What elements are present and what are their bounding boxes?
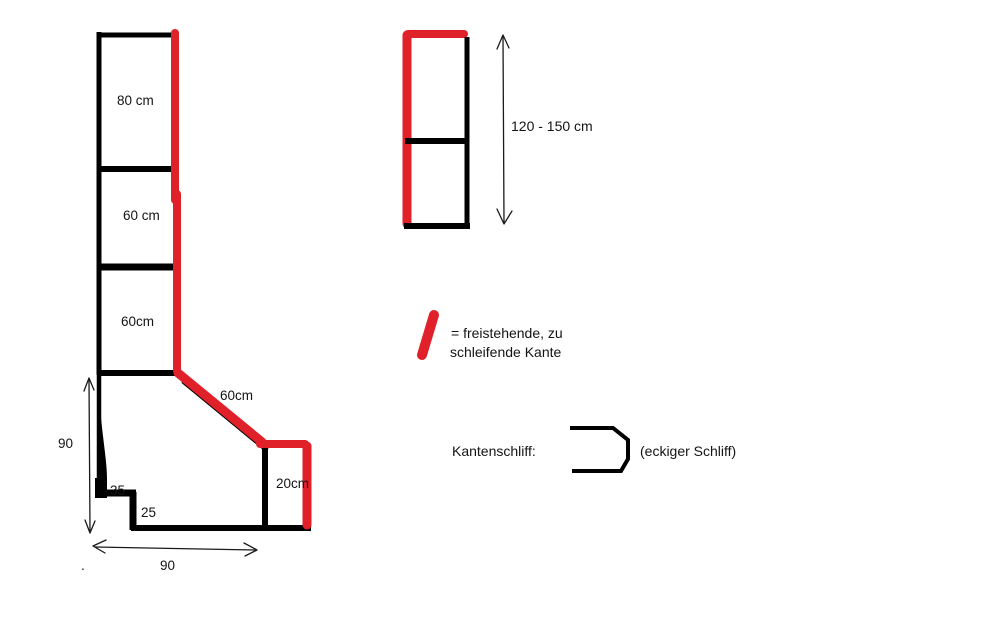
- legend-line2: schleifende Kante: [450, 344, 562, 360]
- edge-grind-note: Kantenschliff: (eckiger Schliff): [452, 428, 736, 471]
- segment2-label: 60 cm: [123, 208, 160, 223]
- panel-height-dimension: 120 - 150 cm: [497, 35, 593, 224]
- width-dimension: 90: [93, 540, 257, 573]
- legend-red-stroke: [422, 315, 434, 355]
- box-label: 20cm: [276, 476, 309, 491]
- right-figure: 120 - 150 cm: [404, 34, 593, 226]
- panel-dimension-line: [503, 37, 504, 222]
- diagonal-label: 60cm: [220, 388, 253, 403]
- red-edge-diagonal: [178, 373, 262, 442]
- panel-height-label: 120 - 150 cm: [511, 118, 593, 134]
- segment1-label: 80 cm: [117, 93, 154, 108]
- segment3-label: 60cm: [121, 314, 154, 329]
- height-dimension-line: [89, 380, 90, 531]
- legend-line1: = freistehende, zu: [451, 325, 563, 341]
- width-dimension-line: [95, 547, 256, 550]
- step-lower-label: 25: [141, 505, 156, 520]
- sketch-page: 80 cm 60 cm 60cm 60cm 20cm 35 25 90 90 .: [0, 0, 1008, 630]
- width-dim-label: 90: [160, 558, 175, 573]
- diagram-canvas: 80 cm 60 cm 60cm 60cm 20cm 35 25 90 90 .: [0, 0, 1008, 630]
- edge-grind-label: Kantenschliff:: [452, 443, 536, 459]
- left-figure: 80 cm 60 cm 60cm 60cm 20cm 35 25 90 90 .: [58, 32, 311, 573]
- edge-profile-shape: [570, 428, 628, 471]
- step-upper-label: 35: [110, 483, 125, 498]
- lower-left-edge-curve: [101, 418, 107, 486]
- edge-grind-note-text: (eckiger Schliff): [640, 443, 736, 459]
- stray-dot: .: [81, 558, 85, 573]
- height-dimension: 90: [58, 378, 95, 533]
- legend: = freistehende, zu schleifende Kante: [422, 315, 563, 360]
- height-dim-label: 90: [58, 436, 73, 451]
